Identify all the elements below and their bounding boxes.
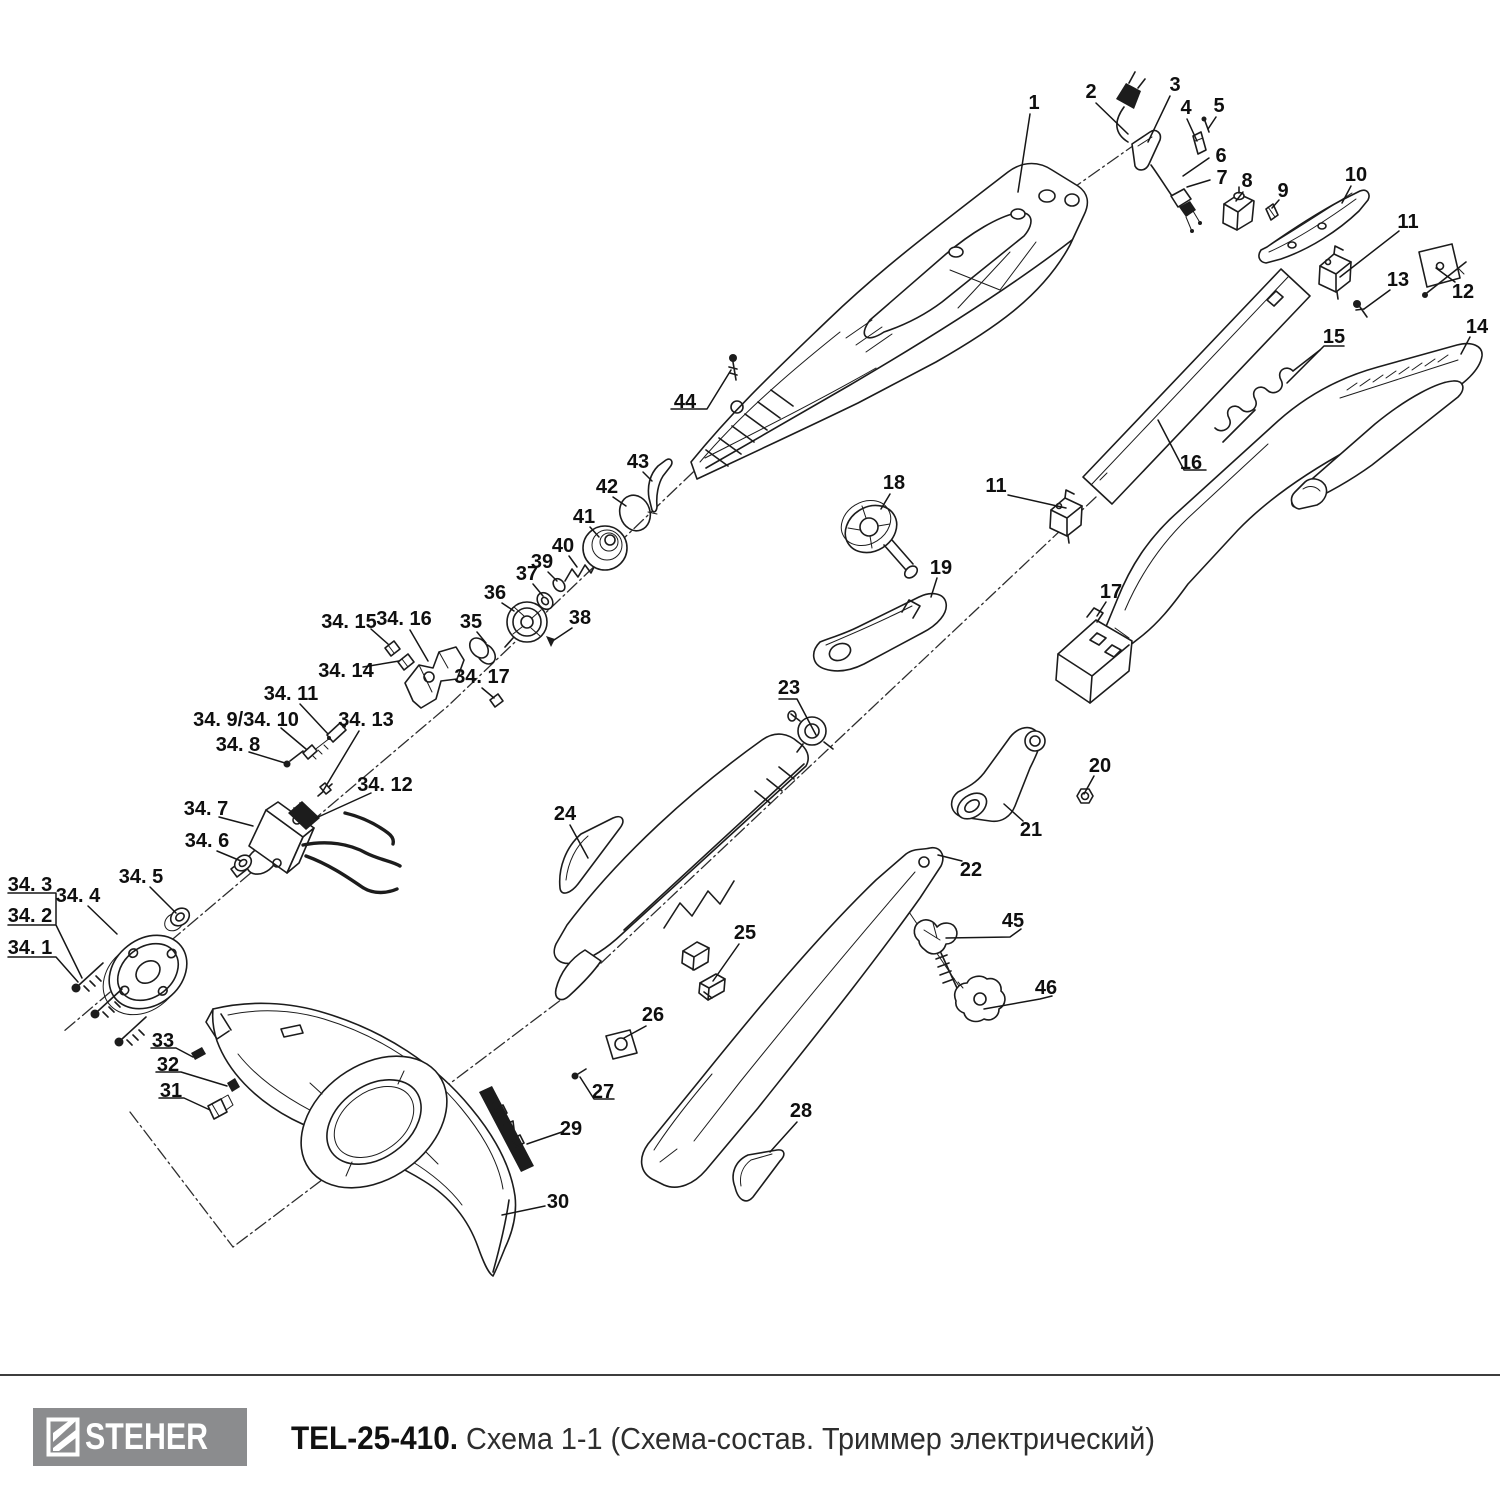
leader-line-4 bbox=[1187, 119, 1197, 141]
part-21-support-arm bbox=[952, 728, 1045, 825]
part-label-11: 11 bbox=[1397, 211, 1418, 233]
part-label-4: 4 bbox=[1180, 97, 1192, 119]
model-number: TEL-25-410. bbox=[291, 1420, 458, 1456]
part-label-14: 14 bbox=[1466, 316, 1489, 338]
leader-line-5 bbox=[1208, 117, 1216, 129]
part-45-wing-nut bbox=[914, 920, 957, 988]
part-label-34-4: 34. 4 bbox=[56, 885, 101, 907]
leader-line-15 bbox=[1287, 346, 1344, 383]
leader-line-38 bbox=[554, 628, 572, 640]
part-label-34-1: 34. 1 bbox=[8, 937, 52, 959]
part-27-screw bbox=[572, 1069, 587, 1080]
part-8-switch bbox=[1223, 187, 1254, 230]
part-label-27: 27 bbox=[592, 1081, 614, 1103]
part-43-clip bbox=[648, 459, 672, 514]
part-label-40: 40 bbox=[552, 535, 574, 557]
leader-line-13 bbox=[1364, 290, 1390, 309]
part-label-28: 28 bbox=[790, 1100, 812, 1122]
part-34-14-bushing bbox=[398, 654, 414, 670]
part-label-2: 2 bbox=[1085, 81, 1096, 103]
part-10-lever-bracket bbox=[1259, 190, 1369, 263]
leader-line-34-4 bbox=[88, 906, 117, 934]
part-label-34-6: 34. 6 bbox=[185, 830, 229, 852]
part-label-35: 35 bbox=[460, 611, 482, 633]
part-label-42: 42 bbox=[596, 476, 618, 498]
part-label-6: 6 bbox=[1215, 145, 1226, 167]
part-33-clip bbox=[191, 1047, 206, 1060]
part-label-3: 3 bbox=[1169, 74, 1180, 96]
part-label-31: 31 bbox=[160, 1080, 182, 1102]
part-label-24: 24 bbox=[554, 803, 577, 825]
part-label-34-2: 34. 2 bbox=[8, 905, 52, 927]
leader-line-34-6 bbox=[217, 851, 241, 861]
part-label-16: 16 bbox=[1180, 452, 1202, 474]
schematic-page: 1234567891011111213141516171819202122232… bbox=[0, 0, 1500, 1500]
part-label-33: 33 bbox=[152, 1030, 174, 1052]
part-label-34-7: 34. 7 bbox=[184, 798, 228, 820]
part-label-1: 1 bbox=[1028, 92, 1039, 114]
part-label-19: 19 bbox=[930, 557, 952, 579]
part-3-sleeve bbox=[1132, 131, 1160, 170]
leader-line-39 bbox=[548, 572, 557, 581]
part-1-upper-housing bbox=[691, 164, 1087, 480]
leader-line-34-9-34-10 bbox=[281, 728, 306, 749]
schema-caption: Схема 1-1 (Схема-состав. Триммер электри… bbox=[458, 1421, 1155, 1456]
part-39-washer bbox=[551, 576, 567, 593]
part-label-5: 5 bbox=[1213, 95, 1224, 117]
part-label-34-11: 34. 11 bbox=[264, 683, 319, 705]
leader-line-34-5 bbox=[150, 887, 176, 913]
part-label-34-5: 34. 5 bbox=[119, 866, 163, 888]
footer-logo: STEHER bbox=[33, 1408, 247, 1466]
exploded-parts-diagram: 1234567891011111213141516171819202122232… bbox=[0, 0, 1500, 1500]
part-label-34-17: 34. 17 bbox=[454, 666, 510, 688]
leader-line-34-11 bbox=[300, 704, 328, 734]
part-22-shaft-cover bbox=[642, 848, 943, 1187]
part-label-17: 17 bbox=[1100, 581, 1122, 603]
leader-line-29 bbox=[527, 1132, 562, 1144]
part-label-29: 29 bbox=[560, 1118, 582, 1140]
part-label-34-9-34-10: 34. 9/34. 10 bbox=[193, 709, 299, 731]
part-38-eyelet bbox=[546, 636, 555, 647]
part-label-30: 30 bbox=[547, 1191, 569, 1213]
part-label-10: 10 bbox=[1345, 164, 1367, 186]
part-label-34-14: 34. 14 bbox=[318, 660, 374, 682]
part-label-23: 23 bbox=[778, 677, 800, 699]
leader-line-34-1 bbox=[8, 957, 78, 982]
part-label-32: 32 bbox=[157, 1054, 179, 1076]
leader-line-11 bbox=[1008, 495, 1066, 508]
part-label-21: 21 bbox=[1020, 819, 1042, 841]
part-label-13: 13 bbox=[1387, 269, 1409, 291]
part-25-latch bbox=[682, 942, 725, 1000]
part-46-star-knob bbox=[955, 976, 1005, 1021]
part-label-9: 9 bbox=[1277, 180, 1288, 202]
leader-line-34-16 bbox=[410, 630, 428, 661]
part-label-26: 26 bbox=[642, 1004, 664, 1026]
part-label-36: 36 bbox=[484, 582, 506, 604]
part-28-guard-knife bbox=[733, 1150, 784, 1201]
steher-logo-icon bbox=[46, 1417, 80, 1457]
part-label-15: 15 bbox=[1323, 326, 1345, 348]
trimmer-head-assembly bbox=[466, 459, 672, 667]
part-34-9-10-pin bbox=[303, 745, 317, 759]
footer-title: TEL-25-410. Схема 1-1 (Схема-состав. Три… bbox=[291, 1420, 1155, 1457]
part-label-8: 8 bbox=[1241, 170, 1252, 192]
part-44-screw bbox=[729, 354, 737, 380]
part-label-34-3: 34. 3 bbox=[8, 874, 52, 896]
leader-line-36 bbox=[502, 603, 514, 611]
part-14-lower-handle-housing bbox=[1096, 344, 1482, 665]
leader-line-40 bbox=[569, 556, 577, 567]
part-label-22: 22 bbox=[960, 859, 982, 881]
part-30-safety-guard bbox=[206, 1003, 516, 1276]
part-label-41: 41 bbox=[573, 506, 595, 528]
part-label-12: 12 bbox=[1452, 281, 1474, 303]
part-label-11: 11 bbox=[985, 475, 1006, 497]
part-31-clip bbox=[208, 1095, 233, 1119]
part-41-spool bbox=[583, 526, 627, 570]
part-26-square-washer bbox=[606, 1030, 637, 1059]
part-19-clamp-arm bbox=[814, 594, 947, 671]
leader-line-6 bbox=[1183, 158, 1209, 176]
leader-line-34-12 bbox=[316, 793, 371, 818]
part-label-34-8: 34. 8 bbox=[216, 734, 260, 756]
footer-divider bbox=[0, 1374, 1500, 1376]
part-label-44: 44 bbox=[674, 391, 697, 413]
part-9-screw bbox=[1266, 204, 1278, 220]
part-label-39: 39 bbox=[531, 551, 553, 573]
part-18-knob bbox=[833, 491, 920, 580]
part-label-46: 46 bbox=[1035, 977, 1057, 999]
part-label-38: 38 bbox=[569, 607, 591, 629]
part-label-34-13: 34. 13 bbox=[338, 709, 394, 731]
part-label-18: 18 bbox=[883, 472, 905, 494]
leader-line-28 bbox=[770, 1122, 797, 1152]
part-32-pin bbox=[227, 1078, 240, 1092]
brand-text: STEHER bbox=[85, 1416, 208, 1458]
leader-line-34-13 bbox=[323, 731, 359, 791]
part-label-34-12: 34. 12 bbox=[357, 774, 413, 796]
part-label-43: 43 bbox=[627, 451, 649, 473]
leader-line-25 bbox=[713, 944, 739, 981]
part-label-25: 25 bbox=[734, 922, 756, 944]
leader-line-34-17 bbox=[482, 688, 494, 698]
part-label-7: 7 bbox=[1216, 167, 1227, 189]
part-label-45: 45 bbox=[1002, 910, 1024, 932]
leader-line-7 bbox=[1187, 180, 1210, 187]
part-label-34-16: 34. 16 bbox=[376, 608, 432, 630]
part-label-34-15: 34. 15 bbox=[321, 611, 377, 633]
part-label-20: 20 bbox=[1089, 755, 1111, 777]
